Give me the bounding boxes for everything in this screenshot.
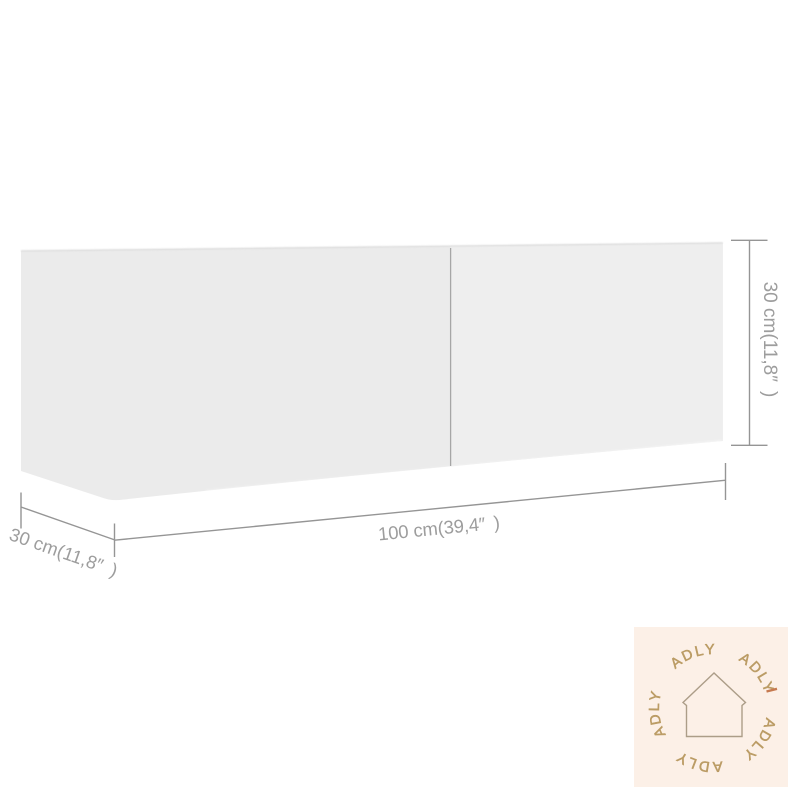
svg-text:30 cm(11,8″ ): 30 cm(11,8″ ) xyxy=(759,282,780,398)
